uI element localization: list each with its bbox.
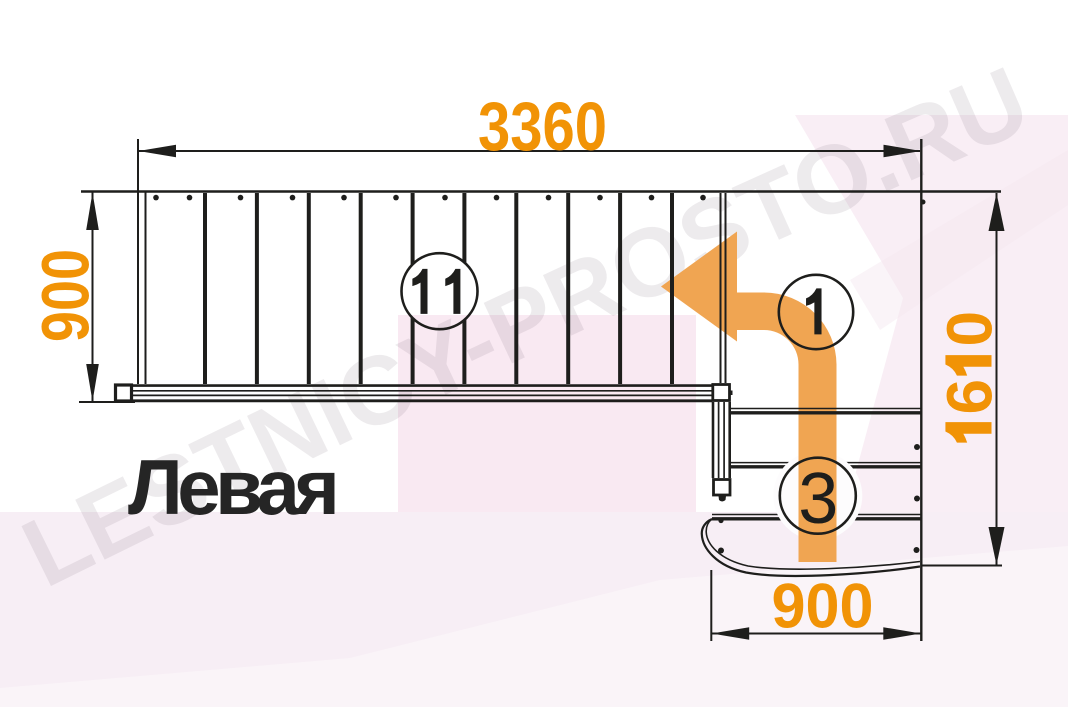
svg-text:900: 900 xyxy=(29,249,104,342)
svg-text:3: 3 xyxy=(798,459,838,539)
svg-text:3360: 3360 xyxy=(478,88,607,165)
svg-text:900: 900 xyxy=(772,572,874,642)
svg-text:Левая: Левая xyxy=(128,443,335,531)
svg-text:0: 0 xyxy=(934,311,1006,347)
svg-text:6: 6 xyxy=(934,379,1006,415)
